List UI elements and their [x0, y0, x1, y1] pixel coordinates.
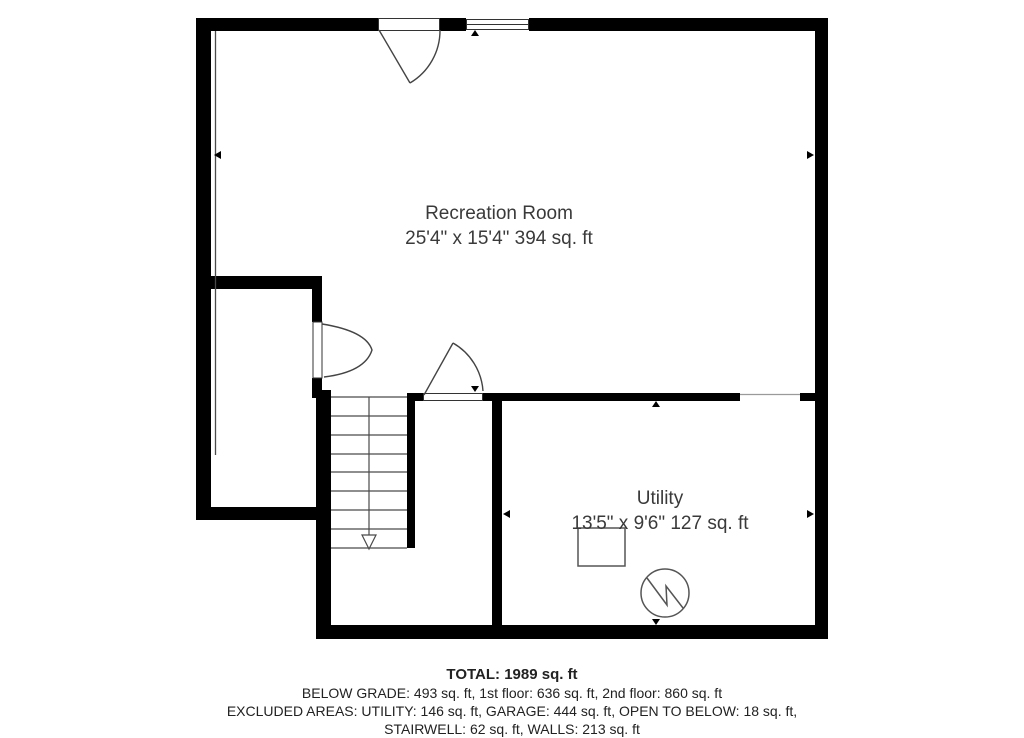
utility-depth-arrow-top [652, 401, 660, 407]
stairs-icon [331, 397, 407, 549]
area-summary: TOTAL: 1989 sq. ft BELOW GRADE: 493 sq. … [0, 666, 1024, 738]
floor-plan-drawing [0, 0, 1024, 738]
rec-depth-arrow-bottom [471, 386, 479, 392]
summary-total: TOTAL: 1989 sq. ft [0, 666, 1024, 684]
floor-plan-canvas: Recreation Room 25'4" x 15'4" 394 sq. ft… [0, 0, 1024, 738]
summary-stairwell-walls: STAIRWELL: 62 sq. ft, WALLS: 213 sq. ft [0, 720, 1024, 738]
summary-below-grade: BELOW GRADE: 493 sq. ft, 1st floor: 636 … [0, 684, 1024, 702]
interior-walls [196, 276, 815, 625]
water-heater-icon [641, 569, 689, 617]
dimension-arrows [214, 30, 814, 625]
furnace-icon [578, 528, 625, 566]
outer-walls [196, 18, 828, 639]
window-icon [460, 18, 535, 31]
summary-excluded-areas: EXCLUDED AREAS: UTILITY: 146 sq. ft, GAR… [0, 702, 1024, 720]
stairs-down-arrow [362, 535, 376, 549]
closet-door-swing-icon [313, 322, 372, 378]
utility-depth-arrow-bottom [652, 619, 660, 625]
rec-width-arrow-right [807, 151, 814, 159]
utility-width-arrow-left [503, 510, 510, 518]
utility-door-swing-icon [424, 343, 484, 401]
rec-depth-arrow-top [471, 30, 479, 36]
utility-width-arrow-right [807, 510, 814, 518]
entry-door-swing-icon [379, 19, 441, 84]
